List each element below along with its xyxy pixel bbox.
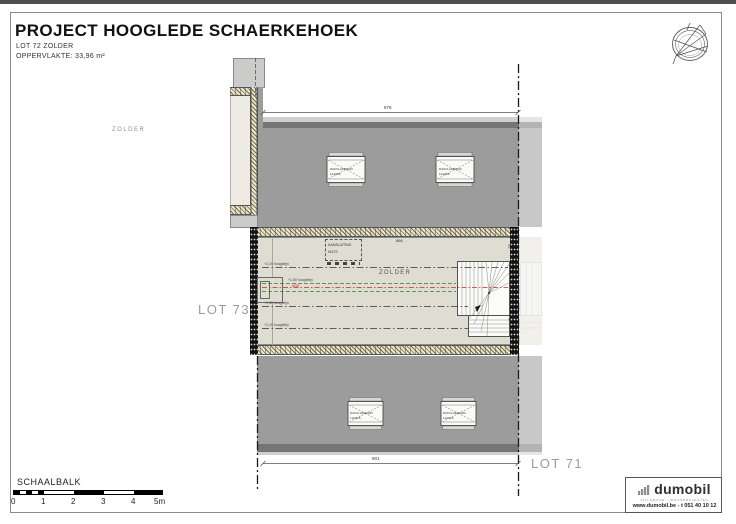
area-label: OPPERVLAKTE: 33,96 m²	[16, 53, 105, 60]
skylight-label-line1: DAKVLAKRAAM	[443, 411, 466, 415]
drawing-sheet: PROJECT HOOGLEDE SCHAERKEHOEK LOT 72 ZOL…	[0, 0, 736, 524]
lower-roof-dark-band	[257, 444, 542, 452]
neighbor-room	[230, 96, 250, 205]
height-line-label-3: +1,50 hoogtelijn	[264, 301, 289, 305]
tech-box-dashes	[327, 262, 360, 265]
duct-box-inner	[260, 281, 270, 299]
skylight-label-line1: DAKVLAKRAAM	[330, 167, 353, 171]
skylight-3: DAKVLAKRAAM 114/118	[347, 397, 384, 430]
height-line-label-2: +1,50 hoogtelijn	[288, 278, 313, 282]
dumobil-logo: dumobil	[626, 481, 723, 497]
scalebar-tick-0: 0	[11, 497, 15, 506]
lot-73-label: LOT 73	[198, 302, 250, 317]
title-block: dumobil VILLABOUW - WOONPROJECTEN www.du…	[625, 477, 722, 513]
dumobil-bars-icon	[638, 484, 651, 495]
kneewall-insulation-bottom	[250, 345, 519, 355]
scalebar-seg	[26, 491, 32, 494]
scalebar-tick-1: 1	[41, 497, 45, 506]
tech-box-line1: AANSLUITING	[328, 243, 351, 247]
north-compass-icon	[662, 18, 718, 70]
scalebar-seg	[38, 491, 44, 494]
dim-wall-top-value: 82	[508, 244, 513, 248]
skylight-label-line1: DAKVLAKRAAM	[350, 411, 373, 415]
scalebar-tick-3: 3	[101, 497, 105, 506]
skylight-label-line2: 114/118	[330, 172, 340, 176]
skylight-label-line1: DAKVLAKRAAM	[439, 167, 462, 171]
dumobil-tagline: VILLABOUW - WOONPROJECTEN	[626, 498, 723, 502]
zone-label-zolder-left: ZOLDER	[112, 127, 145, 133]
staircase	[457, 261, 510, 337]
scalebar-seg	[74, 491, 104, 494]
scalebar-tick-5: 5m	[154, 497, 165, 506]
dim-top-value: 876	[384, 105, 392, 110]
skylight-2: DAKVLAKRAAM 114/118	[435, 152, 475, 187]
height-line-label-4: +2,20 hoogtelijn	[264, 323, 289, 327]
neighbor-cap-top	[233, 58, 265, 88]
lower-roof-eave-line	[257, 452, 542, 455]
scalebar-seg	[14, 491, 20, 494]
scalebar-tick-2: 2	[71, 497, 75, 506]
tech-dashed-box: AANSLUITING NUTS	[325, 239, 362, 261]
height-line-label-1: +2,20 hoogtelijn	[264, 262, 289, 266]
neighbor-insulation-top	[230, 87, 251, 96]
neighbor-insulation-bottom	[230, 205, 251, 215]
upper-roof-plane	[263, 128, 542, 227]
lot-71-label: LOT 71	[531, 456, 583, 471]
lower-roof-plane	[257, 356, 542, 444]
page-title: PROJECT HOOGLEDE SCHAERKEHOEK	[15, 21, 358, 41]
scalebar-title: SCHAALBALK	[17, 477, 81, 487]
nok-label: NOK	[292, 284, 300, 288]
scalebar-tick-4: 4	[131, 497, 135, 506]
dim-interior-value: 866	[396, 238, 403, 243]
sheet-top-edge	[0, 0, 736, 4]
lot71-fade-overlay	[519, 117, 542, 455]
skylight-1: DAKVLAKRAAM 114/118	[326, 152, 366, 187]
page-subtitle: LOT 72 ZOLDER	[16, 43, 73, 50]
dumobil-wordmark: dumobil	[654, 481, 711, 497]
neighbor-insulation-right	[250, 87, 258, 215]
dim-wall-bottom-value: 97	[508, 318, 513, 322]
scalebar	[13, 490, 163, 495]
room-label-zolder: ZOLDER	[379, 270, 411, 276]
tech-box-line2: NUTS	[328, 250, 338, 254]
skylight-label-line2: 114/118	[439, 172, 449, 176]
scalebar-seg	[134, 491, 162, 494]
skylight-label-line2: 114/118	[350, 416, 360, 420]
skylight-4: DAKVLAKRAAM 114/118	[440, 397, 477, 430]
dumobil-contact: www.dumobil.be - t 051 40 10 12	[626, 503, 723, 509]
kneewall-insulation-top	[250, 227, 519, 237]
dim-bottom-value: 901	[372, 456, 380, 461]
skylight-label-line2: 114/118	[443, 416, 453, 420]
